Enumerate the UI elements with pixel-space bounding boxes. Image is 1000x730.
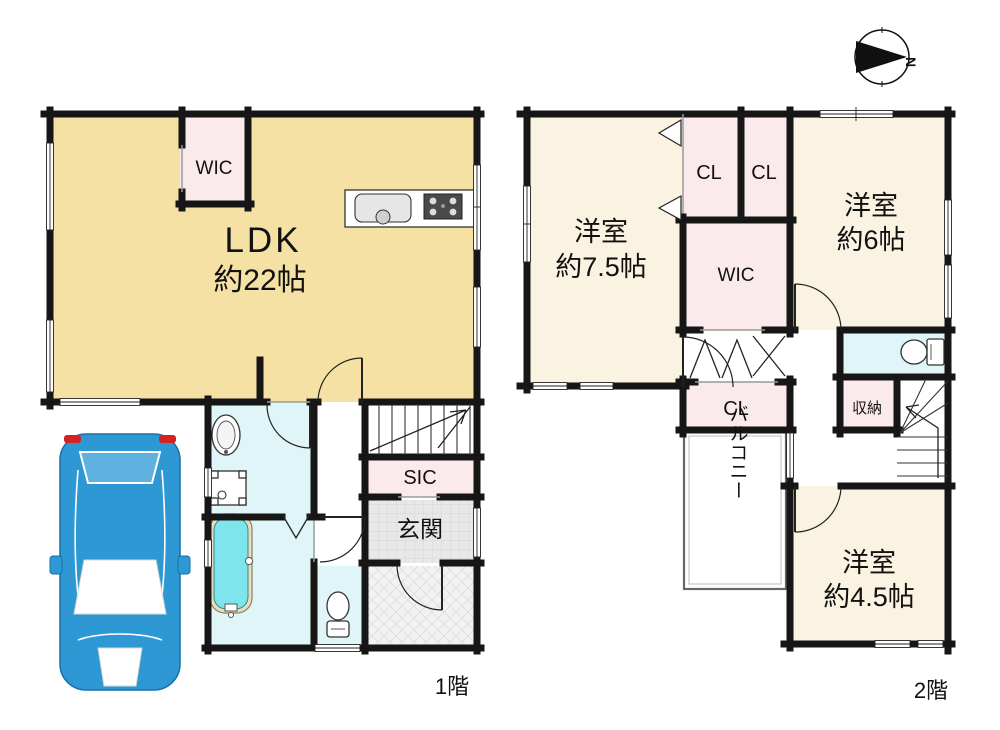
- folding-door-icon: [690, 340, 752, 378]
- tail-light-icon: [159, 435, 176, 443]
- kitchen-counter: [345, 190, 475, 227]
- toilet2-icon: [901, 339, 944, 365]
- wic1-label: WIC: [196, 158, 233, 179]
- sliding-door-icon: [753, 336, 785, 376]
- car-illustration: [50, 434, 190, 690]
- floor1-name-label: 1階: [435, 674, 469, 699]
- windshield: [74, 560, 166, 614]
- tail-light-icon: [64, 435, 81, 443]
- balcony-label: バルコニー: [727, 405, 748, 500]
- storage-label: 収納: [852, 400, 882, 417]
- sink-faucet-icon: [376, 210, 390, 224]
- room75-label: 洋室: [574, 217, 628, 247]
- floor2-name-label: 2階: [914, 678, 948, 703]
- washing-machine-icon: [211, 471, 246, 505]
- room75-size-label: 約7.5帖: [555, 252, 647, 282]
- floorplan-drawing: N WIC LDK 約22帖 SIC 玄関 1階 洋室 約7.5帖 CL CL …: [0, 0, 1000, 725]
- bathtub-icon: [210, 514, 253, 618]
- side-mirror-icon: [50, 556, 62, 574]
- stairs-2f: [897, 379, 948, 478]
- hood-panel: [98, 648, 142, 686]
- sic-label: SIC: [403, 467, 436, 489]
- ldk-label: LDK: [224, 221, 301, 260]
- cl-top-left-label: CL: [696, 162, 722, 184]
- room45-label: 洋室: [842, 548, 896, 578]
- room6-size-label: 約6帖: [836, 225, 905, 255]
- stairs-1f: [370, 404, 470, 455]
- side-mirror-icon: [178, 556, 190, 574]
- room6-label: 洋室: [844, 191, 898, 221]
- ldk-size-label: 約22帖: [213, 264, 306, 297]
- compass-icon: N: [855, 27, 919, 87]
- floorplan-page: N WIC LDK 約22帖 SIC 玄関 1階 洋室 約7.5帖 CL CL …: [0, 0, 1000, 725]
- genkan-label: 玄関: [397, 516, 443, 542]
- cl-top-right-label: CL: [751, 162, 777, 184]
- toilet1-icon: [327, 592, 349, 637]
- room75: [527, 114, 683, 386]
- rear-window: [80, 452, 160, 483]
- wic2-label: WIC: [718, 265, 755, 286]
- room6: [790, 114, 948, 330]
- washbasin-icon: [212, 415, 240, 455]
- room45-size-label: 約4.5帖: [823, 582, 915, 612]
- compass-north-label: N: [903, 57, 919, 67]
